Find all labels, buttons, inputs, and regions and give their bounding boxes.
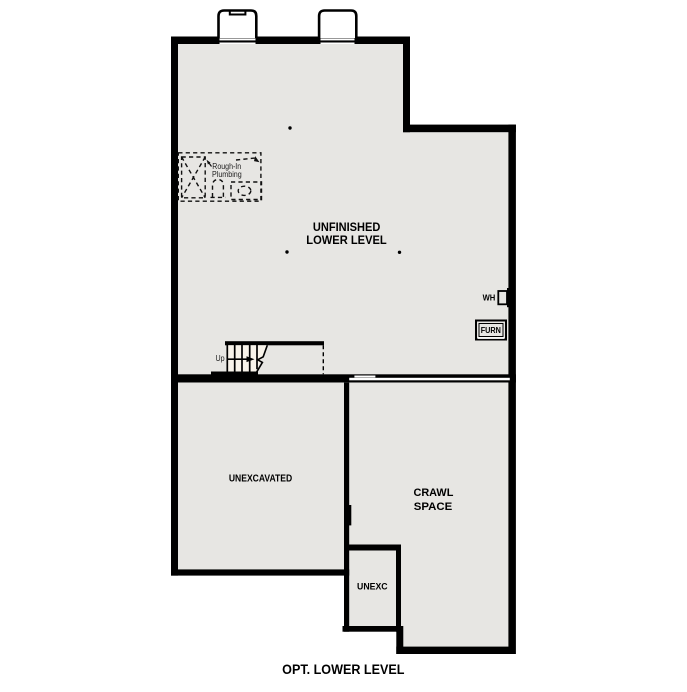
svg-text:UNFINISHED: UNFINISHED bbox=[313, 220, 380, 234]
svg-text:SPACE: SPACE bbox=[414, 501, 453, 513]
svg-text:FURN: FURN bbox=[481, 325, 501, 335]
svg-text:Up: Up bbox=[216, 353, 225, 363]
svg-text:Plumbing: Plumbing bbox=[212, 170, 242, 180]
svg-text:CRAWL: CRAWL bbox=[413, 487, 453, 499]
svg-text:LOWER LEVEL: LOWER LEVEL bbox=[306, 233, 386, 247]
svg-text:WH: WH bbox=[483, 293, 496, 302]
svg-text:UNEXC: UNEXC bbox=[357, 581, 388, 591]
svg-text:UNEXCAVATED: UNEXCAVATED bbox=[229, 473, 293, 484]
svg-text:OPT. LOWER LEVEL: OPT. LOWER LEVEL bbox=[282, 661, 404, 677]
